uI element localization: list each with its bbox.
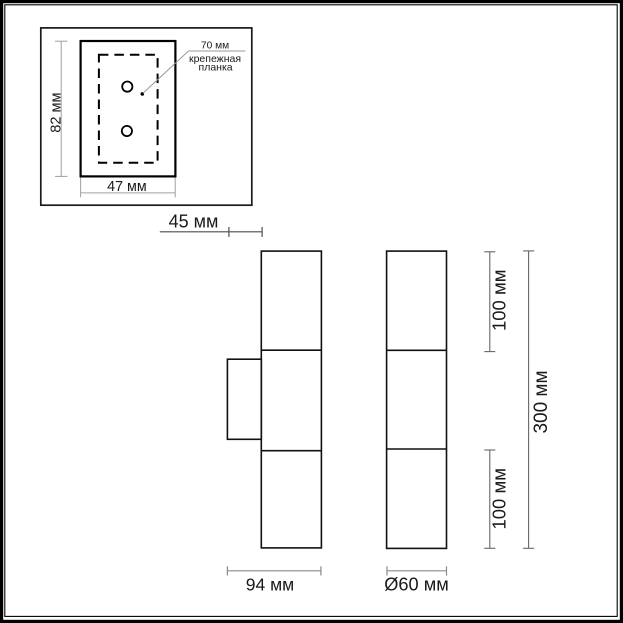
svg-text:70 мм: 70 мм: [201, 41, 229, 52]
svg-text:94 мм: 94 мм: [246, 575, 294, 595]
svg-text:82 мм: 82 мм: [48, 92, 64, 132]
svg-text:300 мм: 300 мм: [531, 370, 552, 433]
svg-text:45 мм: 45 мм: [169, 212, 219, 232]
svg-text:планка: планка: [199, 62, 233, 74]
svg-text:100 мм: 100 мм: [489, 468, 510, 529]
svg-text:Ø60 мм: Ø60 мм: [384, 575, 448, 595]
svg-text:100 мм: 100 мм: [489, 270, 510, 331]
svg-text:47 мм: 47 мм: [107, 179, 147, 195]
